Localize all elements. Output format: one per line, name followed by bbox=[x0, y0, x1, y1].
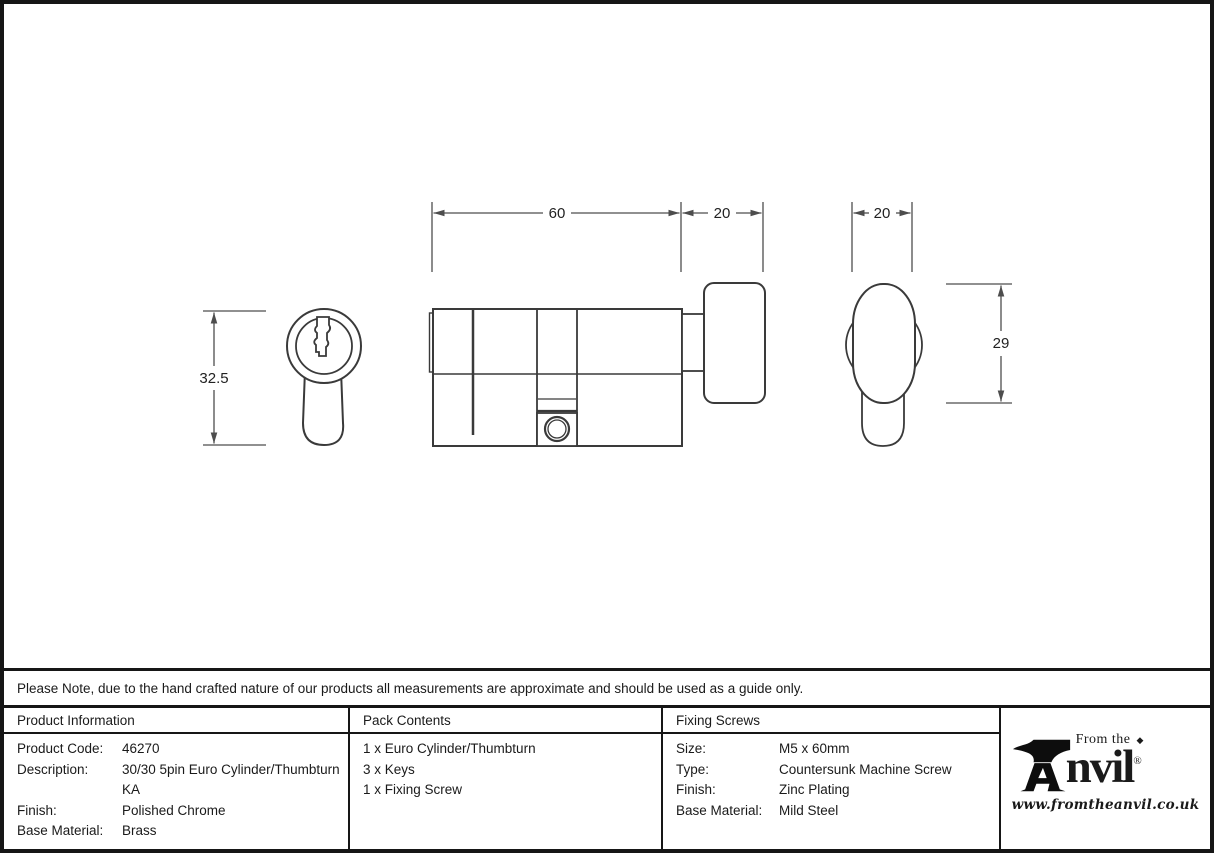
technical-drawing: 60 20 20 32.5 2 bbox=[4, 4, 1210, 668]
pack-contents-column: Pack Contents 1 x Euro Cylinder/Thumbtur… bbox=[350, 708, 663, 849]
product-code-label: Product Code: bbox=[17, 739, 122, 760]
finish-value: Polished Chrome bbox=[122, 801, 344, 822]
dim-label-60: 60 bbox=[549, 205, 566, 222]
info-table: Product Information Product Code: 46270 … bbox=[4, 708, 1210, 849]
description-value: 30/30 5pin Euro Cylinder/Thumbturn KA bbox=[122, 760, 344, 801]
thumbturn-front-view bbox=[846, 284, 922, 446]
product-information-column: Product Information Product Code: 46270 … bbox=[4, 708, 350, 849]
anvil-icon bbox=[1012, 736, 1072, 794]
pack-contents-body: 1 x Euro Cylinder/Thumbturn 3 x Keys 1 x… bbox=[350, 734, 661, 801]
cylinder-side-view bbox=[430, 283, 766, 446]
description-label: Description: bbox=[17, 760, 122, 801]
dim-label-29: 29 bbox=[993, 335, 1010, 352]
product-information-header: Product Information bbox=[4, 708, 348, 734]
screw-material-value: Mild Steel bbox=[779, 801, 995, 822]
dim-label-32-5: 32.5 bbox=[199, 370, 228, 387]
fixing-screws-header: Fixing Screws bbox=[663, 708, 999, 734]
screw-size-value: M5 x 60mm bbox=[779, 739, 995, 760]
screw-type-value: Countersunk Machine Screw bbox=[779, 760, 995, 781]
diamond-icon: ◆ bbox=[1137, 736, 1144, 745]
screw-finish-label: Finish: bbox=[676, 780, 779, 801]
pack-item: 1 x Euro Cylinder/Thumbturn bbox=[363, 739, 657, 760]
anvil-logo: From the ◆ nvil® www.fromtheanvil.co.uk bbox=[1012, 732, 1200, 813]
registered-mark: ® bbox=[1133, 755, 1141, 767]
fixing-screws-column: Fixing Screws Size: M5 x 60mm Type: Coun… bbox=[663, 708, 1001, 849]
product-information-body: Product Code: 46270 Description: 30/30 5… bbox=[4, 734, 348, 842]
product-spec-sheet: 60 20 20 32.5 2 bbox=[0, 0, 1214, 853]
dim-label-20-width: 20 bbox=[874, 205, 891, 222]
screw-finish-value: Zinc Plating bbox=[779, 780, 995, 801]
cylinder-front-view bbox=[287, 309, 361, 445]
screw-material-label: Base Material: bbox=[676, 801, 779, 822]
product-code-value: 46270 bbox=[122, 739, 344, 760]
screw-size-label: Size: bbox=[676, 739, 779, 760]
pack-contents-header: Pack Contents bbox=[350, 708, 661, 734]
measurement-note: Please Note, due to the hand crafted nat… bbox=[4, 668, 1210, 708]
pack-item: 1 x Fixing Screw bbox=[363, 780, 657, 801]
dim-label-20-depth: 20 bbox=[714, 205, 731, 222]
brand-cell: From the ◆ nvil® www.fromtheanvil.co.uk bbox=[1001, 708, 1210, 849]
base-material-value: Brass bbox=[122, 821, 344, 842]
screw-type-label: Type: bbox=[676, 760, 779, 781]
logo-name: nvil bbox=[1066, 741, 1134, 793]
fixing-screws-body: Size: M5 x 60mm Type: Countersunk Machin… bbox=[663, 734, 999, 821]
thumbturn-knob-side bbox=[704, 283, 765, 403]
base-material-label: Base Material: bbox=[17, 821, 122, 842]
thumbturn-neck bbox=[682, 314, 704, 371]
note-text: Please Note, due to the hand crafted nat… bbox=[17, 681, 803, 696]
pack-item: 3 x Keys bbox=[363, 760, 657, 781]
finish-label: Finish: bbox=[17, 801, 122, 822]
logo-url: www.fromtheanvil.co.uk bbox=[1012, 797, 1200, 813]
